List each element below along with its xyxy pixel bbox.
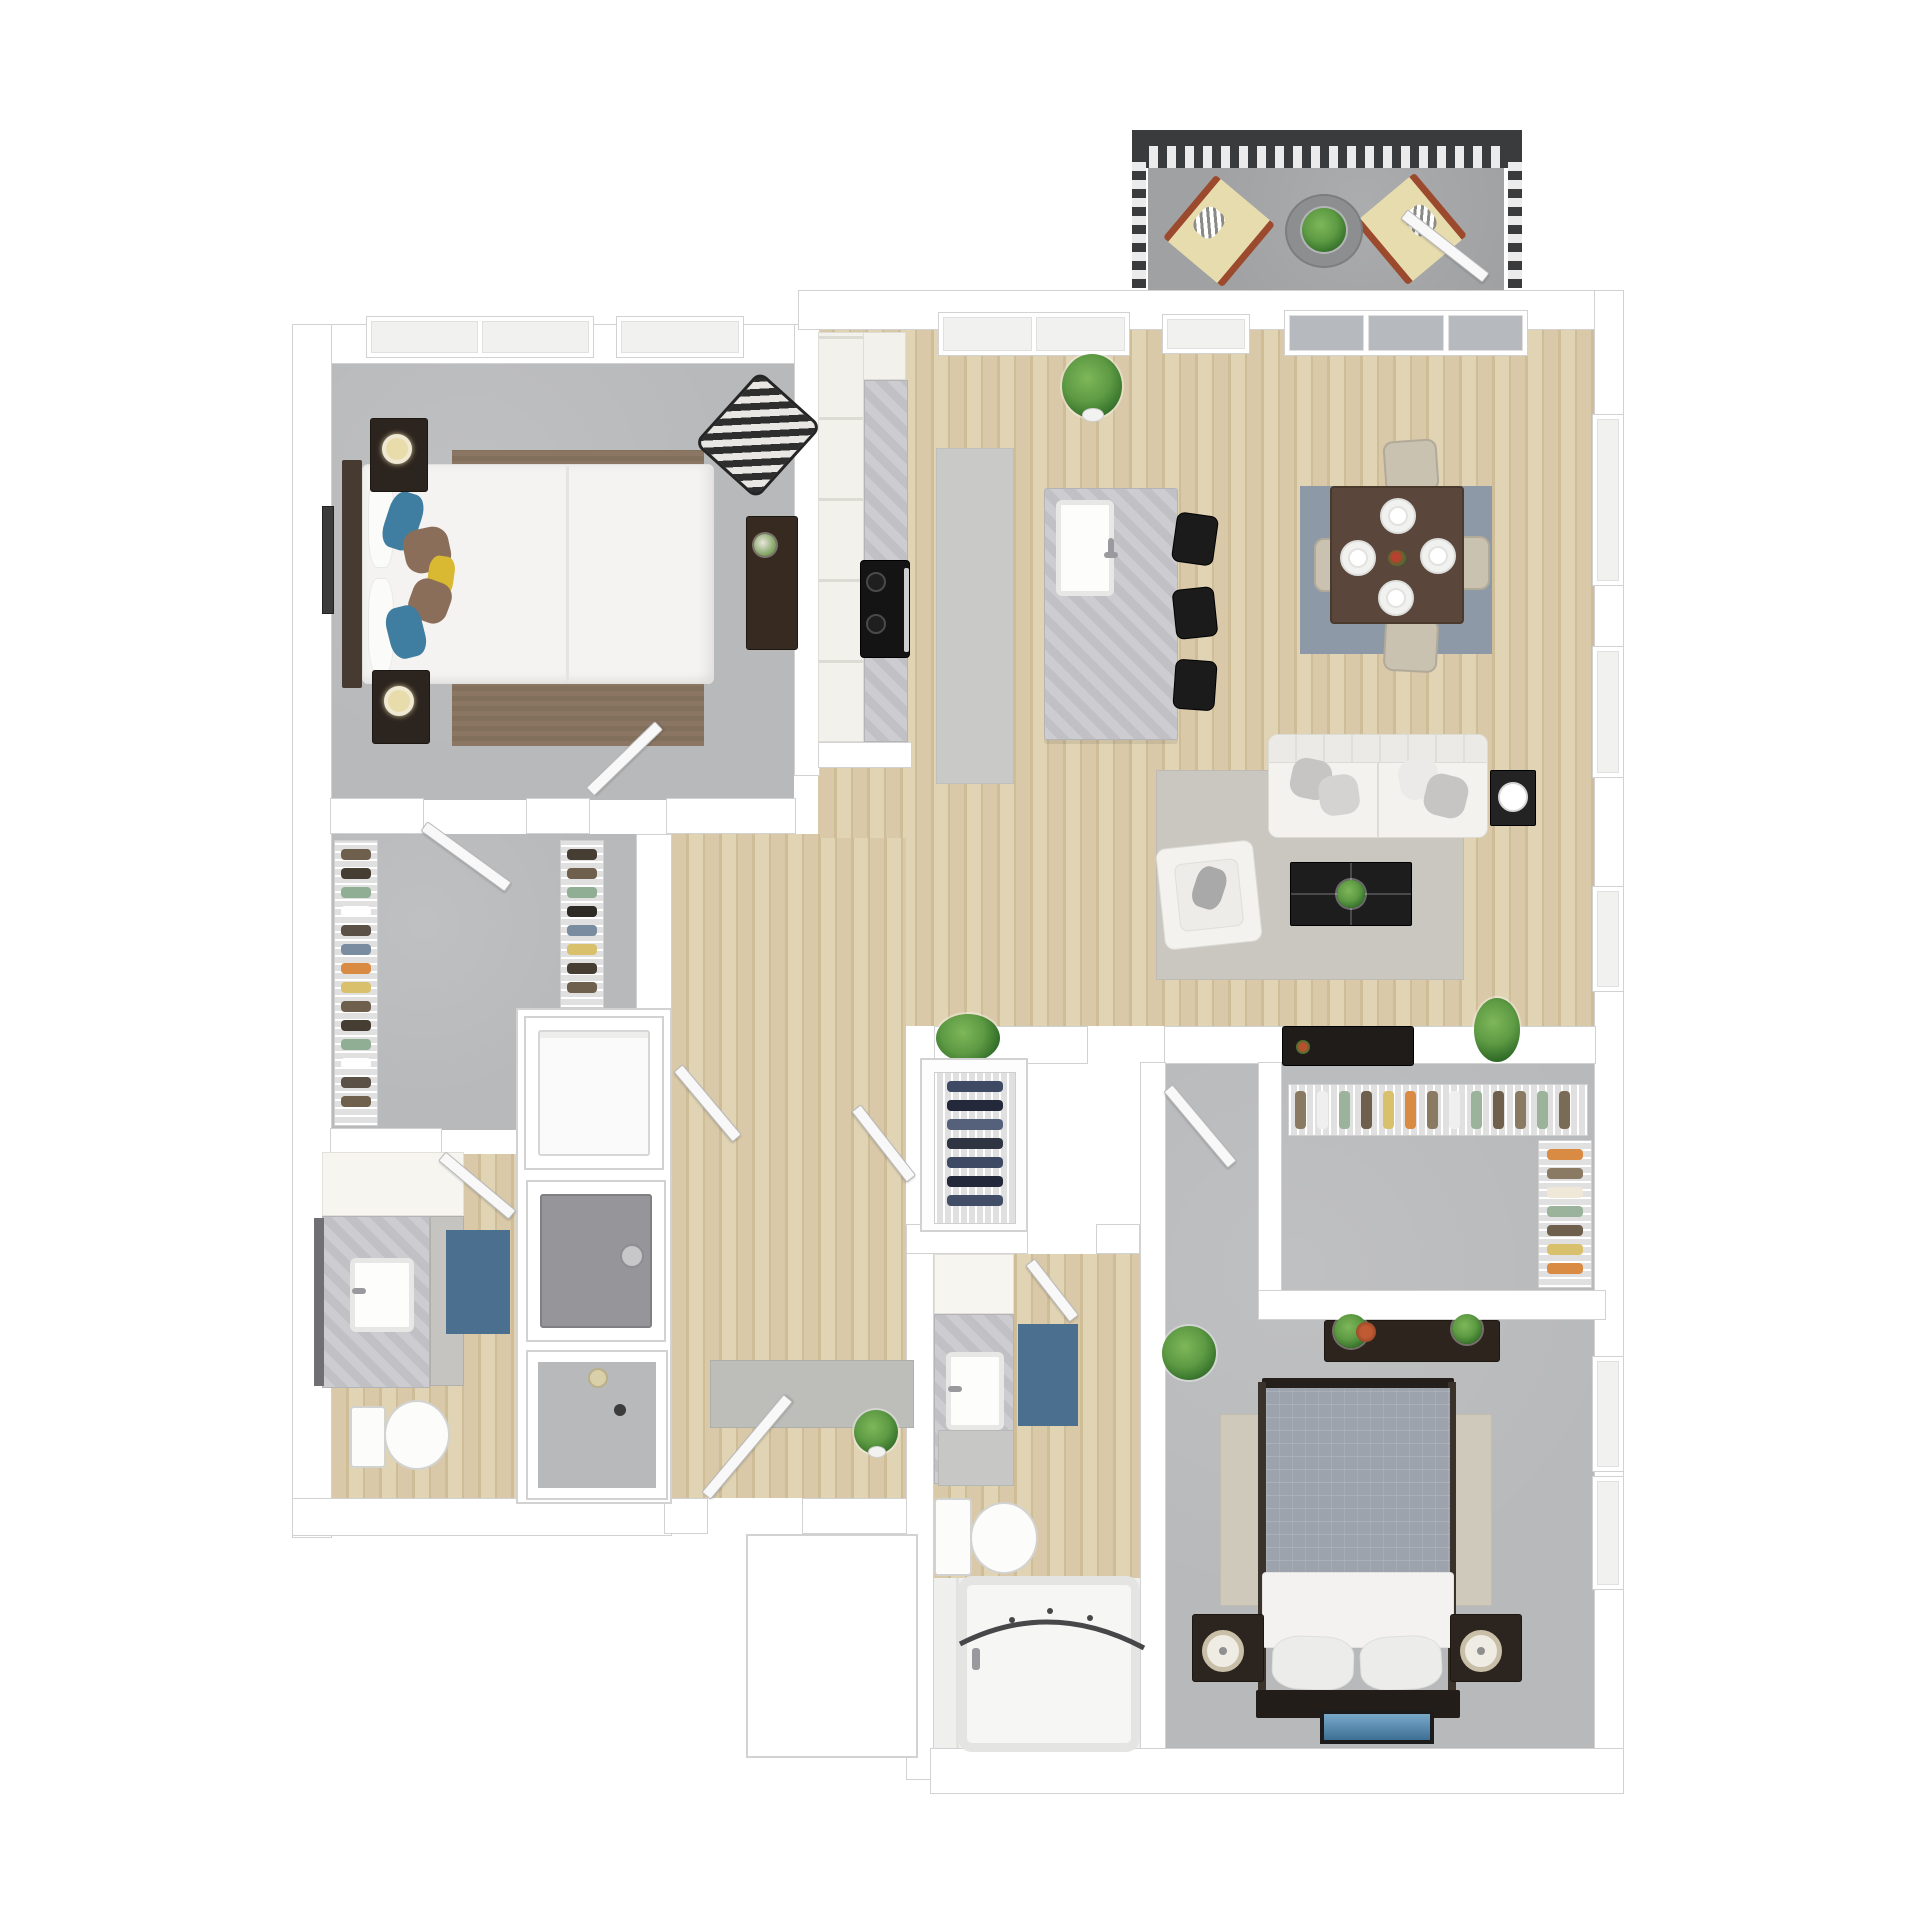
bathroom1-rug — [446, 1230, 510, 1334]
clothing-item — [1547, 1244, 1583, 1255]
sofa-seam — [1377, 763, 1379, 837]
wall-bottom — [930, 1748, 1624, 1794]
dryer-door-handle — [620, 1244, 644, 1268]
window-pane — [371, 321, 478, 353]
clothing-item — [341, 925, 370, 936]
window-pane — [1597, 419, 1619, 581]
armchair — [1155, 839, 1263, 951]
clothing-item — [947, 1138, 1003, 1149]
balcony-railing-slats-left — [1132, 162, 1146, 288]
clothing-item — [341, 1001, 370, 1012]
bathroom2-counter-top — [934, 1254, 1014, 1314]
bar-stool-2 — [1172, 586, 1219, 640]
bedroom2-lamp-right — [1460, 1630, 1502, 1672]
floor-plan — [0, 0, 1920, 1920]
window-pane — [482, 321, 589, 353]
island-sink — [1056, 500, 1114, 596]
clothing-item — [947, 1157, 1003, 1168]
clothing-item — [341, 944, 370, 955]
dining-window-right — [1592, 414, 1624, 586]
cooktop-burner-1 — [866, 572, 886, 592]
place-setting — [1378, 580, 1414, 616]
window-pane — [1597, 1361, 1619, 1467]
clothing-item — [341, 849, 370, 860]
shower-pendant-light — [588, 1368, 608, 1388]
clothing-item — [1493, 1091, 1504, 1129]
clothing-item — [567, 906, 596, 917]
lounge-pillow — [1189, 203, 1228, 243]
place-setting — [1340, 540, 1376, 576]
bar-stool-3 — [1172, 659, 1217, 712]
bed2-pillow-right — [1359, 1634, 1444, 1692]
entry-plant-pot — [868, 1446, 886, 1458]
tv-console-decor — [1296, 1040, 1310, 1054]
clothing-item — [341, 906, 370, 917]
clothing-item — [341, 868, 370, 879]
bedroom1-window-2 — [616, 316, 744, 358]
clothing-item — [1547, 1149, 1583, 1160]
nightstand-bottom-lamp — [384, 686, 414, 716]
clothing-item — [1547, 1206, 1583, 1217]
living-plant-corner — [1474, 998, 1520, 1062]
window-pane — [621, 321, 739, 353]
console-plant-2 — [1452, 1314, 1482, 1344]
table-centerpiece — [1388, 550, 1406, 566]
clothing-item — [341, 1096, 370, 1107]
clothing-item — [1547, 1225, 1583, 1236]
console-plant-red — [1356, 1322, 1376, 1342]
window-pane — [1597, 1481, 1619, 1585]
window-pane — [1167, 319, 1245, 349]
shower-rod — [950, 1570, 1150, 1690]
clothing-item — [567, 849, 596, 860]
clothing-item — [1383, 1091, 1394, 1129]
place-setting — [1380, 498, 1416, 534]
living-plant-wall — [936, 1014, 1000, 1062]
clothing-item — [1339, 1091, 1350, 1129]
oven-handle — [904, 568, 909, 652]
clothing-item — [1547, 1168, 1583, 1179]
patio-glass-pane — [1289, 315, 1364, 351]
clothing-item — [1361, 1091, 1372, 1129]
dining-chair-bottom — [1383, 617, 1440, 674]
clothing-item — [341, 1039, 370, 1050]
patio-glass-pane — [1368, 315, 1443, 351]
bed2-blanket — [1266, 1388, 1450, 1574]
wall-closet2-left — [1258, 1062, 1282, 1292]
sofa — [1268, 734, 1488, 838]
clothing-item — [341, 887, 370, 898]
bathroom1-toilet-bowl — [384, 1400, 450, 1470]
bedroom2-window-1 — [1592, 1356, 1624, 1472]
wall-bedroom1-bottom-c — [666, 798, 796, 834]
kitchen-plant-pot — [1082, 408, 1104, 422]
clothing-item — [947, 1176, 1003, 1187]
clothing-item — [567, 982, 596, 993]
clothing-item — [947, 1100, 1003, 1111]
bar-stool-1 — [1171, 511, 1220, 566]
bathroom1-mirror — [314, 1218, 324, 1386]
closet2-rack-top — [1288, 1084, 1588, 1136]
window-pane — [1036, 317, 1125, 351]
patio-door — [1284, 310, 1528, 356]
bedroom1-wall-art — [322, 506, 334, 614]
clothing-item — [947, 1119, 1003, 1130]
bathroom1-faucet — [352, 1288, 366, 1294]
nightstand-top-lamp — [382, 434, 412, 464]
kitchen-window — [938, 312, 1130, 356]
clothing-item — [567, 944, 596, 955]
clothing-item — [947, 1081, 1003, 1092]
bedroom2-floor-art — [1320, 1710, 1434, 1744]
bedroom1-duvet-fold — [566, 466, 569, 682]
bathroom2-toilet-bowl — [970, 1502, 1038, 1574]
bathroom2-faucet — [948, 1386, 962, 1392]
balcony-railing-right — [1506, 130, 1522, 162]
clothing-item — [567, 963, 596, 974]
bedroom2-plant — [1162, 1326, 1216, 1380]
clothing-item — [1547, 1187, 1583, 1198]
bedroom1-headboard — [342, 460, 362, 688]
walkin-rack-right — [560, 840, 604, 1008]
clothing-item — [1405, 1091, 1416, 1129]
clothing-item — [1537, 1091, 1548, 1129]
clothing-item — [567, 868, 596, 879]
window-pane — [1597, 651, 1619, 773]
washer — [538, 1030, 650, 1156]
island-faucet-base — [1104, 552, 1118, 558]
clothing-item — [1295, 1091, 1306, 1129]
bathroom1-toilet-tank — [350, 1406, 386, 1468]
clothing-item — [1471, 1091, 1482, 1129]
tub-faucet — [972, 1648, 980, 1670]
living-window-top — [1162, 314, 1250, 354]
shower-drain — [614, 1404, 626, 1416]
bedroom2-lamp-left — [1202, 1630, 1244, 1672]
balcony-railing-top — [1132, 130, 1522, 146]
clothing-item — [341, 1077, 370, 1088]
living-window-right-2 — [1592, 886, 1624, 992]
wall-closet2-bottom — [1258, 1290, 1606, 1320]
clothing-item — [341, 963, 370, 974]
wall-bedroom1-bottom-a — [330, 798, 424, 834]
coffee-table — [1290, 862, 1412, 926]
bathroom2-rug — [1018, 1324, 1078, 1426]
clothing-item — [567, 887, 596, 898]
clothing-item — [1449, 1091, 1460, 1129]
window-pane — [1597, 891, 1619, 987]
desk-flowers — [754, 534, 776, 556]
living-window-right-1 — [1592, 646, 1624, 778]
clothing-item — [1427, 1091, 1438, 1129]
clothing-item — [1317, 1091, 1328, 1129]
entry-stoop — [746, 1534, 918, 1758]
clothing-item — [947, 1195, 1003, 1206]
hallway-kitchen-connector — [820, 768, 906, 838]
clothing-item — [1559, 1091, 1570, 1129]
closet2-rack-right — [1538, 1140, 1592, 1288]
patio-glass-pane — [1448, 315, 1523, 351]
dining-table — [1330, 486, 1464, 624]
bedroom2-window-2 — [1592, 1476, 1624, 1590]
cooktop-burner-2 — [866, 614, 886, 634]
wall-bathroom2-top-b — [1096, 1224, 1140, 1254]
kitchen-runner-rug — [936, 448, 1014, 784]
balcony-railing-slats-right — [1508, 162, 1522, 288]
bedroom1-window-1 — [366, 316, 594, 358]
bathroom2-toilet-tank — [934, 1498, 972, 1576]
wall-bathroom1-top-a — [330, 1128, 442, 1154]
clothing-item — [341, 1020, 370, 1031]
place-setting — [1420, 538, 1456, 574]
clothing-item — [567, 925, 596, 936]
coffee-table-plant — [1337, 880, 1365, 908]
patio-table-plant — [1302, 208, 1346, 252]
clothing-item — [341, 982, 370, 993]
clothing-item — [1547, 1263, 1583, 1274]
kitchen-cabinets — [818, 332, 864, 742]
bathroom2-gray-mat — [938, 1430, 1014, 1486]
clothing-item — [1515, 1091, 1526, 1129]
balcony-railing-left — [1132, 130, 1148, 162]
side-table-lamp — [1498, 782, 1528, 812]
window-pane — [943, 317, 1032, 351]
wall-bedroom1-bottom-b — [526, 798, 590, 834]
bed2-pillow-left — [1271, 1635, 1355, 1692]
clothing-item — [341, 1058, 370, 1069]
entry-shoe-rack — [934, 1072, 1016, 1224]
sofa-pillow-2 — [1316, 772, 1361, 817]
bathroom1-sink — [350, 1258, 414, 1332]
wall-kitchen-stub — [818, 742, 912, 768]
walkin-rack-left — [334, 840, 378, 1126]
balcony-railing-slats-top — [1140, 146, 1514, 168]
